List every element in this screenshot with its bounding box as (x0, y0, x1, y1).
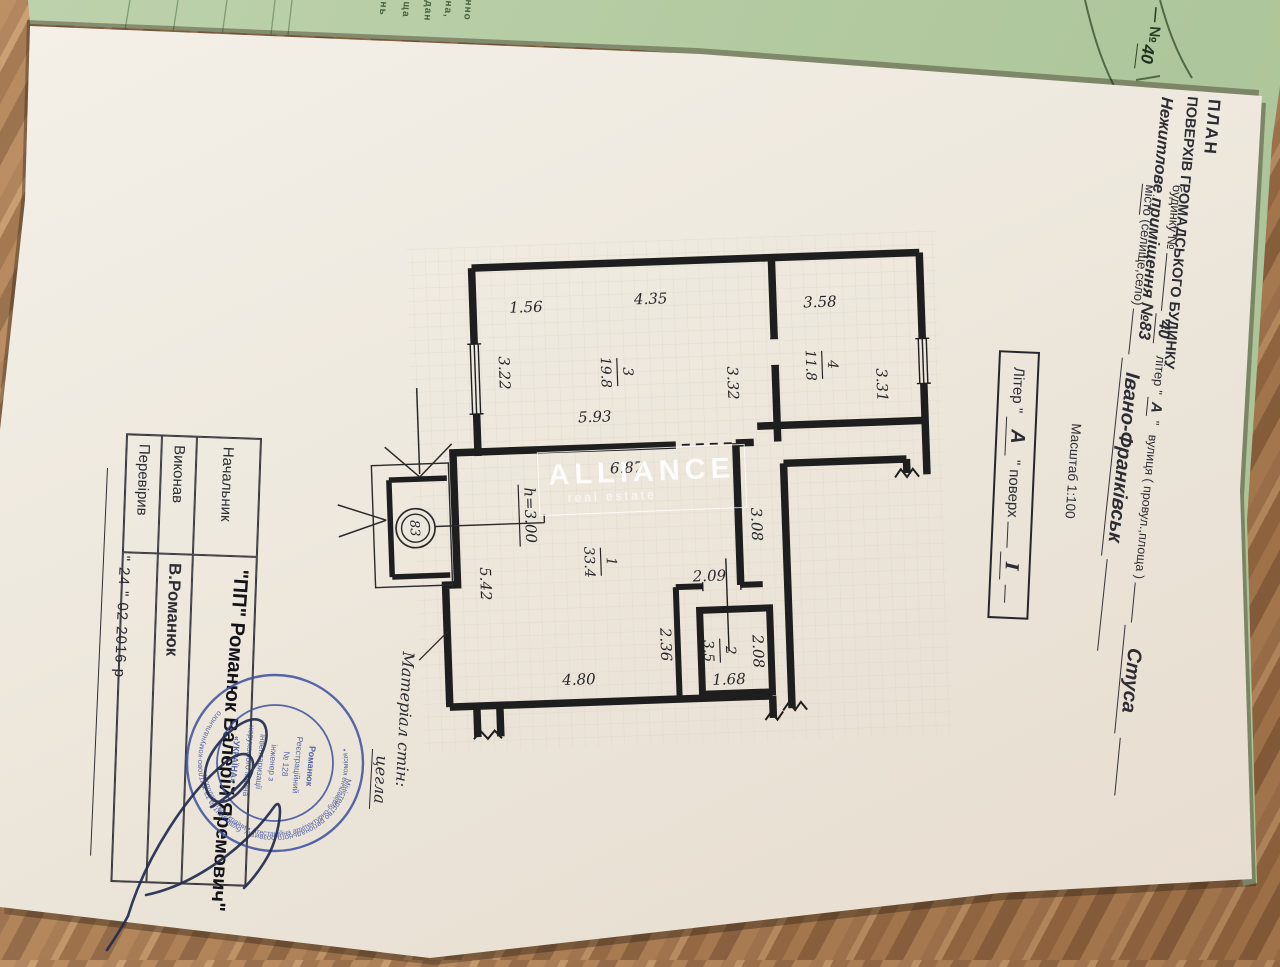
dim-label: 3.08 (747, 507, 766, 541)
entrance-arrow-right (338, 503, 387, 537)
blank-line (1131, 582, 1149, 623)
liter-close: " (1147, 420, 1162, 426)
blank-line (1114, 738, 1133, 797)
entrance-number: 83 (406, 520, 422, 537)
dim-label: 2.08 (748, 633, 767, 668)
house-label: будинку № (1164, 184, 1185, 250)
liter-box-value: А (1004, 417, 1029, 456)
svg-text:«УКРАЇНА»: «УКРАЇНА» (228, 736, 242, 784)
dim-label: 4.35 (633, 289, 668, 308)
svg-text:1: 1 (603, 557, 619, 566)
green-text-fragment: ща (400, 1, 412, 18)
svg-text:19.8: 19.8 (597, 357, 614, 389)
table-row-label: Перевірив (123, 434, 162, 553)
watermark-subtitle: real estate (567, 487, 657, 505)
blank-line (1004, 584, 1019, 603)
city-label: місто (1139, 184, 1158, 217)
green-text-fragment: нь (377, 1, 389, 16)
dim-label: 3.58 (803, 292, 837, 311)
tab-number-value: 40 (1134, 43, 1158, 70)
blank-line (1161, 253, 1180, 312)
svg-text:3: 3 (619, 367, 635, 377)
green-text-fragment: нно (461, 0, 474, 21)
liter-box-label2: " поверх (1004, 459, 1024, 517)
liter-value: А (1146, 397, 1166, 417)
dim-label: 1.68 (712, 670, 746, 689)
house-number: 40 (1153, 314, 1174, 345)
ceiling-height-label: h=3.00 (520, 487, 540, 544)
floor-value: I (999, 551, 1022, 580)
svg-text:Романюк: Романюк (304, 746, 318, 788)
dim-label: 5.42 (476, 567, 495, 601)
green-text-fragment: дан (421, 0, 434, 22)
tab-curve-line (1160, 0, 1192, 78)
svg-text:33.4: 33.4 (580, 546, 597, 578)
green-text-fragment: на, (442, 0, 454, 18)
material-value: цегла (369, 749, 392, 810)
dim-label: 4.80 (561, 670, 596, 689)
stamp-center-text: Романюк Реєстраційний № 128 інженер з ін… (227, 723, 319, 802)
table-row-label: Виконав (158, 436, 197, 555)
liter-box-label: Літер " (1008, 367, 1027, 414)
svg-text:4: 4 (824, 359, 840, 369)
tab-curve-line (1085, 0, 1114, 86)
round-stamp: Міністерство регіонального розвитку, буд… (180, 668, 370, 858)
dim-label: 3.32 (723, 366, 742, 400)
svg-text:№ 128: № 128 (280, 751, 292, 777)
svg-text:3.5: 3.5 (700, 640, 717, 663)
dim-label: 3.22 (495, 356, 514, 390)
dim-label: 1.56 (509, 298, 543, 317)
dim-label: 2.09 (691, 566, 726, 585)
dim-label: 5.93 (578, 407, 612, 426)
dim-label: 2.36 (656, 627, 675, 662)
svg-text:11.8: 11.8 (802, 349, 819, 381)
watermark-brand: ALLIANCE (548, 454, 736, 490)
blank-line (1006, 522, 1021, 549)
dim-label: 3.31 (872, 368, 891, 402)
svg-text:Реєстраційний: Реєстраційний (290, 736, 305, 794)
alliance-watermark: ALLIANCE real estate (537, 444, 747, 516)
blank-line (1128, 309, 1147, 356)
tab-number-label: — № (1145, 7, 1165, 44)
liter-label: літер " (1150, 355, 1169, 395)
svg-text:інженер з: інженер з (266, 744, 279, 782)
table-row-label: Начальник (193, 437, 261, 557)
svg-text:2: 2 (722, 645, 738, 656)
